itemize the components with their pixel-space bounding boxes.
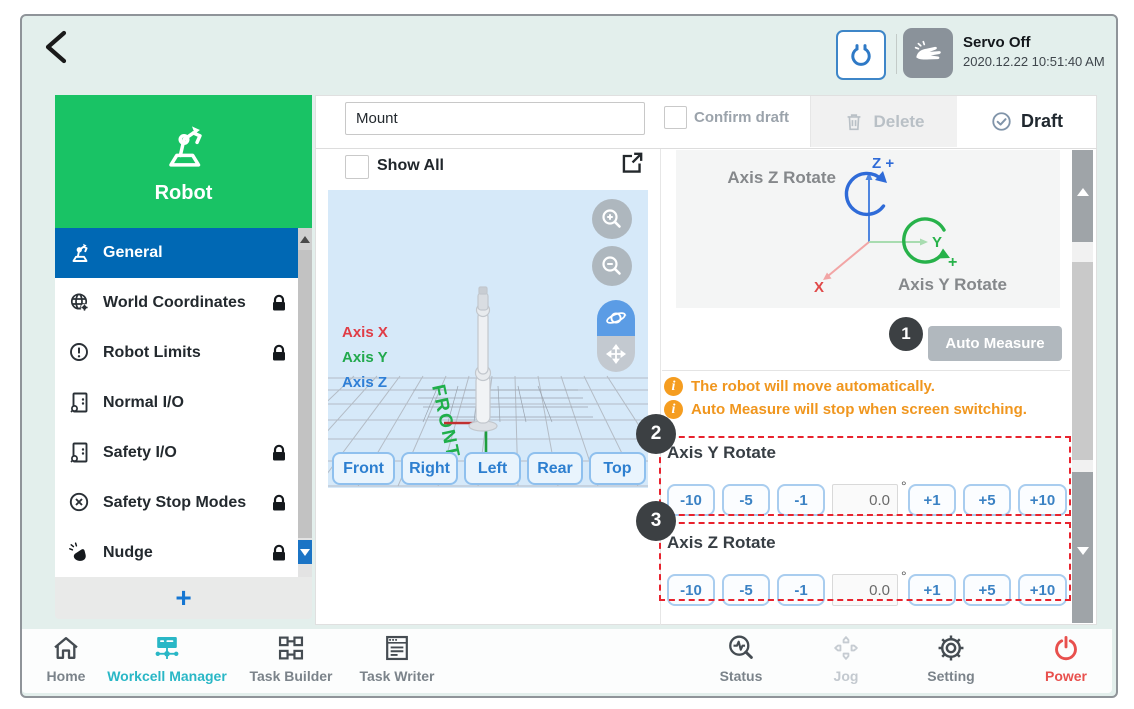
sidebar-item-label: World Coordinates (103, 294, 246, 312)
gear-icon (936, 633, 966, 663)
sidebar-title: Robot (155, 182, 213, 205)
auto-measure-button[interactable]: Auto Measure (928, 326, 1062, 361)
view-rear-button[interactable]: Rear (527, 452, 583, 485)
check-circle-icon (990, 110, 1013, 133)
panel-scroll-track[interactable] (1072, 242, 1093, 262)
axis-y-value-input[interactable] (832, 484, 898, 516)
servo-status-text: Servo Off (963, 34, 1031, 51)
sidebar-item-label: Safety Stop Modes (103, 494, 246, 512)
lock-icon (268, 442, 290, 464)
expand-icon (618, 149, 646, 177)
axis-y-minus-1-button[interactable]: -1 (777, 484, 825, 516)
confirm-draft-checkbox[interactable] (664, 106, 687, 129)
axis-z-legend: Axis Z (342, 374, 387, 391)
sidebar-scrollbar[interactable] (298, 228, 312, 578)
lock-icon (268, 342, 290, 364)
status-pulse-icon (726, 633, 756, 663)
show-all-checkbox[interactable] (345, 155, 369, 179)
nav-home[interactable]: Home (26, 633, 106, 693)
home-icon (51, 633, 81, 663)
sidebar-item-safety-io[interactable]: Safety I/O (55, 428, 298, 479)
annotation-badge-1: 1 (889, 317, 923, 351)
sidebar-item-general[interactable]: General (55, 228, 298, 279)
view-left-button[interactable]: Left (464, 452, 521, 485)
io-board-icon (67, 440, 93, 466)
info-icon: i (664, 400, 683, 419)
notice-robot-move: i The robot will move automatically. (664, 377, 935, 396)
trash-icon (843, 111, 865, 133)
axis-y-plus-1-button[interactable]: +1 (908, 484, 956, 516)
axis-z-degree-unit: ° (901, 568, 907, 584)
jog-dpad-icon (831, 633, 861, 663)
io-board-icon (67, 390, 93, 416)
sidebar-item-label: Safety I/O (103, 444, 177, 462)
axis-rotate-diagram: Axis Z Rotate Z + Y + X Axis Y Rotate (676, 150, 1060, 308)
section-divider (662, 370, 1070, 371)
annotation-badge-2: 2 (636, 414, 676, 454)
axis-z-plus-10-button[interactable]: +10 (1018, 574, 1067, 606)
nav-power[interactable]: Power (1026, 633, 1106, 693)
panel-scroll-track[interactable] (1072, 460, 1093, 472)
sidebar-item-label: Robot Limits (103, 344, 201, 362)
datetime-text: 2020.12.22 10:51:40 AM (963, 54, 1105, 69)
floor-front-text: FRONT (427, 383, 463, 461)
globe-icon (67, 290, 93, 316)
axis-y-legend: Axis Y (342, 349, 388, 366)
axis-y-plus-10-button[interactable]: +10 (1018, 484, 1067, 516)
sidebar-menu: General World Coordinates Robot Limits (55, 228, 312, 578)
servo-hand-button[interactable] (903, 28, 953, 78)
zoom-in-button[interactable] (592, 199, 632, 239)
nav-task-writer[interactable]: Task Writer (342, 633, 452, 693)
nav-setting[interactable]: Setting (901, 633, 1001, 693)
show-all-label: Show All (377, 157, 444, 175)
delete-button[interactable]: Delete (810, 96, 957, 147)
robot-icon (155, 118, 213, 174)
draft-label: Draft (1021, 111, 1063, 132)
view-right-button[interactable]: Right (401, 452, 458, 485)
sidebar-item-normal-io[interactable]: Normal I/O (55, 378, 298, 429)
view-top-button[interactable]: Top (589, 452, 646, 485)
power-icon (1051, 633, 1081, 663)
back-chevron-icon (40, 28, 76, 66)
delete-label: Delete (873, 112, 924, 132)
plus-label: + (175, 584, 191, 612)
annotation-badge-3: 3 (636, 501, 676, 541)
panel-scroll-up[interactable] (1072, 150, 1093, 242)
nudge-hand-icon (67, 540, 93, 566)
task-writer-icon (382, 633, 412, 663)
add-workcell-item-button[interactable]: + (55, 577, 312, 619)
sidebar-item-label: Nudge (103, 544, 153, 562)
zoom-out-icon (599, 253, 625, 279)
orbit-icon (603, 305, 629, 331)
panel-scrollbar-thumb[interactable] (1072, 262, 1093, 460)
axis-z-plus-1-button[interactable]: +1 (908, 574, 956, 606)
sidebar-item-robot-limits[interactable]: Robot Limits (55, 328, 298, 379)
scroll-down-icon[interactable] (298, 540, 312, 564)
item-name-input[interactable] (345, 102, 645, 135)
sidebar-item-world-coordinates[interactable]: World Coordinates (55, 278, 298, 329)
axis-z-rotate-label: Axis Z Rotate (727, 168, 836, 187)
z-plus-label: Z + (872, 155, 894, 172)
nav-task-builder[interactable]: Task Builder (236, 633, 346, 693)
nav-workcell-manager[interactable]: Workcell Manager (97, 633, 237, 693)
recovery-button[interactable] (836, 30, 886, 80)
draft-button[interactable]: Draft (957, 96, 1096, 147)
nav-status[interactable]: Status (691, 633, 791, 693)
notice-auto-measure-stop: i Auto Measure will stop when screen swi… (664, 400, 1027, 419)
expand-viewer-button[interactable] (618, 149, 646, 177)
app-window: Servo Off 2020.12.22 10:51:40 AM Robot G… (0, 0, 1134, 709)
scrollbar-thumb[interactable] (298, 250, 312, 538)
axis-y-rotate-label: Axis Y Rotate (898, 275, 1007, 294)
y-plus-label: + (948, 254, 957, 271)
axis-z-plus-5-button[interactable]: +5 (963, 574, 1011, 606)
stop-circle-x-icon (67, 490, 93, 516)
pan-arrows-icon (603, 341, 629, 367)
axis-z-minus-1-button[interactable]: -1 (777, 574, 825, 606)
scroll-up-icon[interactable] (298, 228, 312, 250)
sidebar-header-robot: Robot (55, 95, 312, 228)
axis-y-minus-10-button[interactable]: -10 (667, 484, 715, 516)
hand-icon (912, 37, 944, 69)
axis-z-minus-5-button[interactable]: -5 (722, 574, 770, 606)
nav-jog[interactable]: Jog (806, 633, 886, 693)
rotate-view-button[interactable] (597, 300, 635, 336)
sidebar-item-nudge[interactable]: Nudge (55, 528, 298, 579)
axis-y-minus-5-button[interactable]: -5 (722, 484, 770, 516)
sidebar-item-label: General (103, 244, 163, 262)
back-button[interactable] (40, 28, 76, 66)
confirm-draft-label: Confirm draft (694, 109, 789, 126)
axis-y-degree-unit: ° (901, 478, 907, 494)
y-axis-label: Y (932, 234, 942, 251)
zoom-in-icon (599, 206, 625, 232)
lock-icon (268, 542, 290, 564)
recovery-icon (847, 41, 875, 69)
sidebar-item-safety-stop-modes[interactable]: Safety Stop Modes (55, 478, 298, 529)
axis-y-plus-5-button[interactable]: +5 (963, 484, 1011, 516)
view-front-button[interactable]: Front (332, 452, 395, 485)
lock-icon (268, 492, 290, 514)
axis-z-value-input[interactable] (832, 574, 898, 606)
axis-z-minus-10-button[interactable]: -10 (667, 574, 715, 606)
zoom-out-button[interactable] (592, 246, 632, 286)
workcell-manager-icon (151, 633, 183, 663)
topbar-divider (896, 34, 897, 74)
toolbar-divider (315, 148, 1097, 149)
panel-divider (660, 149, 661, 625)
axis-y-rotate-section-label: Axis Y Rotate (667, 443, 776, 463)
lock-icon (268, 292, 290, 314)
sidebar-item-label: Normal I/O (103, 394, 184, 412)
axis-x-legend: Axis X (342, 324, 388, 341)
limit-circle-icon (67, 340, 93, 366)
panel-scroll-down[interactable] (1072, 472, 1093, 623)
robot-arm-icon (67, 240, 93, 266)
axis-z-rotate-section-label: Axis Z Rotate (667, 533, 776, 553)
info-icon: i (664, 377, 683, 396)
task-builder-icon (276, 633, 306, 663)
x-axis-label: X (814, 279, 824, 296)
